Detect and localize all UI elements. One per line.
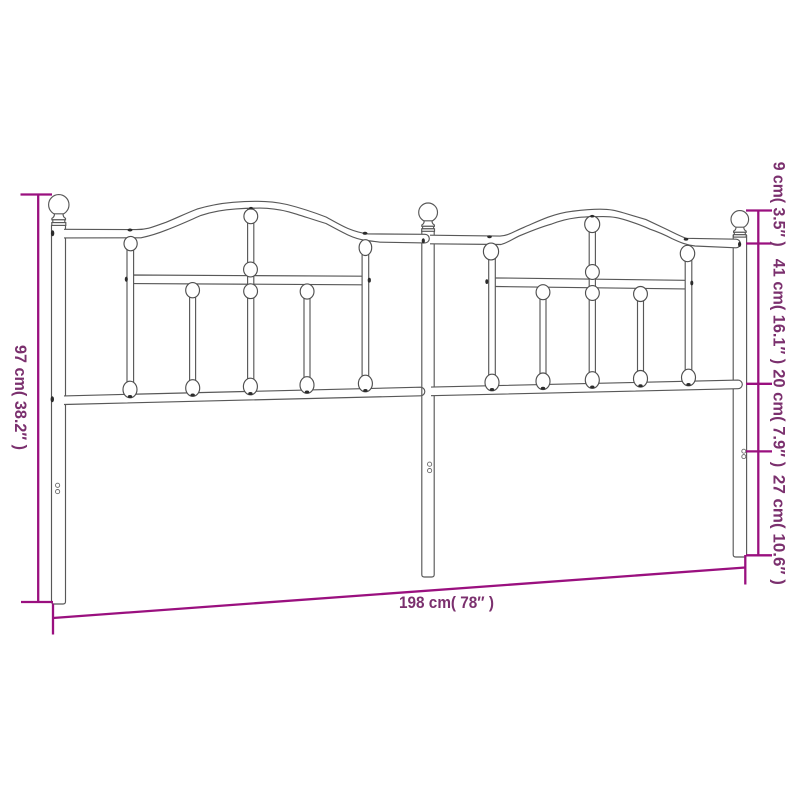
svg-text:27 cm( 10.6″ ): 27 cm( 10.6″ )	[770, 475, 789, 585]
svg-text:41 cm( 16.1″ ): 41 cm( 16.1″ )	[770, 259, 789, 365]
svg-text:198 cm( 78″ ): 198 cm( 78″ )	[399, 593, 494, 612]
svg-text:9 cm( 3.5″ ): 9 cm( 3.5″ )	[770, 162, 789, 247]
svg-text:20 cm( 7.9″ ): 20 cm( 7.9″ )	[770, 369, 789, 467]
svg-text:97 cm( 38.2″ ): 97 cm( 38.2″ )	[11, 345, 30, 450]
